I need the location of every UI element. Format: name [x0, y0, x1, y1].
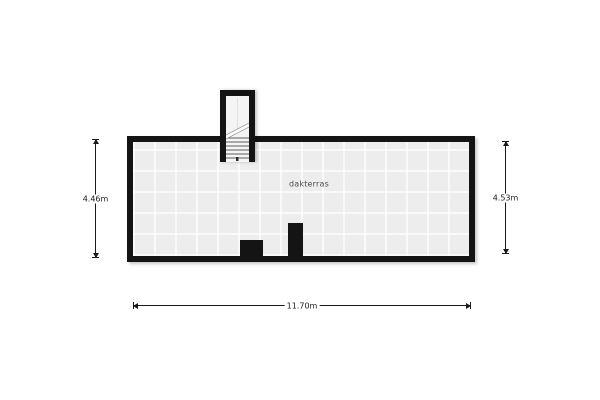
arrow-up-icon — [93, 139, 99, 144]
arrow-down-icon — [503, 249, 509, 254]
arrow-up-icon — [503, 141, 509, 146]
chimney-block-left — [240, 240, 263, 260]
floorplan-canvas: dakterras — [0, 0, 600, 400]
dimension-label-left: 4.46m — [81, 194, 111, 203]
room-label: dakterras — [289, 180, 329, 189]
dimension-label-right: 4.53m — [491, 193, 521, 202]
dimension-right: 4.53m — [499, 141, 512, 254]
arrow-left-icon — [133, 303, 138, 309]
chimney-block-right — [288, 223, 303, 258]
dimension-bottom: 11.70m — [133, 299, 471, 312]
stairwell — [220, 90, 255, 162]
dimension-left: 4.46m — [89, 139, 102, 258]
dimension-label-bottom: 11.70m — [285, 301, 320, 310]
stairs-icon — [226, 96, 249, 162]
arrow-down-icon — [93, 253, 99, 258]
arrow-right-icon — [466, 303, 471, 309]
